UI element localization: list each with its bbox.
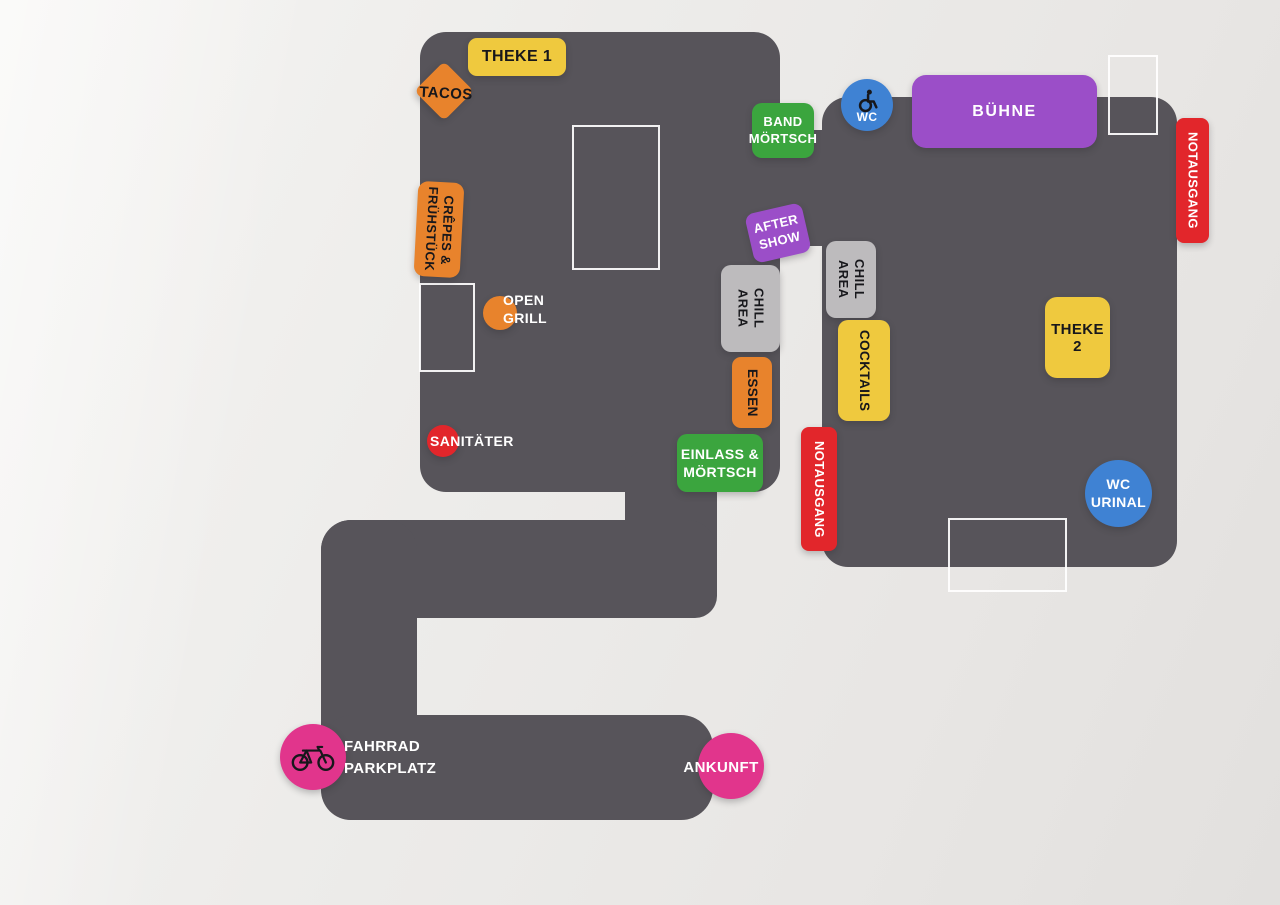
einlass-moertsch-marker: EINLASS & MÖRTSCH	[677, 434, 763, 492]
sanitaeter-label: SANITÄTER	[430, 432, 530, 450]
wc-accessible-label: WC	[857, 110, 878, 124]
wc-accessible-marker: WC	[841, 79, 893, 131]
band-moertsch-marker: BAND MÖRTSCH	[752, 103, 814, 158]
festival-site-map: THEKE 1 TACOS BAND MÖRTSCH WC BÜHNE NOTA…	[0, 0, 1280, 905]
cocktails-marker: COCKTAILS	[838, 320, 890, 421]
tacos-label: TACOS	[418, 82, 475, 105]
marked-rectangle-center	[572, 125, 660, 270]
chill-area-right-marker: CHILL AREA	[826, 241, 876, 318]
bicycle-icon	[291, 742, 335, 772]
marked-rectangle-west	[419, 283, 475, 372]
wc-urinal-marker: WC URINAL	[1085, 460, 1152, 527]
crepes-fruehstueck-marker: CRÊPES & FRÜHSTÜCK	[414, 181, 465, 278]
chill-area-left-marker: CHILL AREA	[721, 265, 780, 352]
theke1-marker: THEKE 1	[468, 38, 566, 76]
ankunft-label: ANKUNFT	[671, 758, 771, 776]
buehne-marker: BÜHNE	[912, 75, 1097, 148]
open-grill-label: OPEN GRILL	[503, 291, 563, 327]
notausgang-stage-marker: NOTAUSGANG	[1176, 118, 1209, 243]
theke2-marker: THEKE 2	[1045, 297, 1110, 378]
fahrrad-parkplatz-marker	[280, 724, 346, 790]
notausgang-mid-marker: NOTAUSGANG	[801, 427, 837, 551]
marked-rectangle-northeast	[1108, 55, 1158, 135]
fahrrad-parkplatz-label: FAHRRAD PARKPLATZ	[344, 736, 454, 780]
essen-marker: ESSEN	[732, 357, 772, 428]
marked-rectangle-southeast	[948, 518, 1067, 592]
